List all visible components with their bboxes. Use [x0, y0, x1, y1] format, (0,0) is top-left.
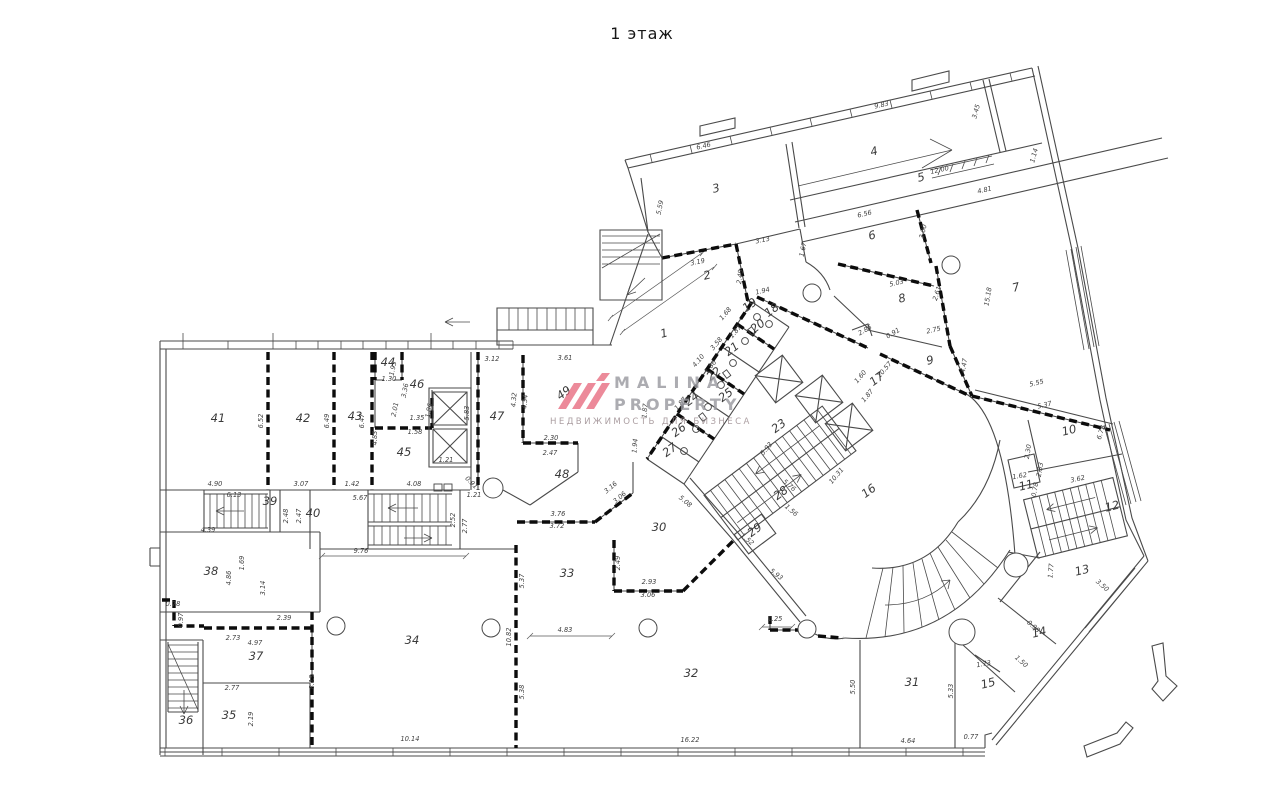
room-number-label: 31 [905, 675, 920, 689]
dimension-label: 1.68 [718, 306, 734, 322]
watermark-brand-line2: PROPERTY [614, 395, 740, 414]
dimension-label: 2.30 [544, 434, 559, 442]
room-number-label: 9 [925, 352, 935, 367]
dimension-label: 3.62 [1070, 474, 1086, 485]
watermark: MALINA PROPERTY НЕДВИЖИМОСТЬ ДЛЯ БИЗНЕСА [548, 365, 758, 435]
room-number-label: 13 [1073, 562, 1091, 579]
room-number-label: 7 [1011, 279, 1022, 295]
dimension-label: 1.42 [345, 480, 360, 488]
dimension-label: 5.50 [849, 680, 857, 695]
room-number-label: 1 [659, 325, 669, 340]
dimension-label: 2.48 [282, 509, 290, 524]
room-number-label: 39 [263, 494, 278, 508]
staircase-12 [1024, 478, 1128, 558]
dimension-label: 4.39 [201, 526, 216, 534]
dimension-label: 16.22 [681, 736, 700, 744]
room-number-label: 45 [397, 445, 412, 459]
dimension-label: 4.81 [976, 185, 992, 196]
dimension-label: 10.14 [401, 735, 420, 743]
dimension-label: 5.38 [518, 685, 526, 700]
room-number-label: 41 [211, 411, 226, 425]
dimension-label: 6.52 [257, 414, 265, 429]
room-number-label: 38 [204, 564, 219, 578]
dimension-label: 0.78 [1030, 482, 1040, 498]
dimension-label: 2.01 [390, 402, 401, 418]
dimension-label: 6.56 [856, 209, 872, 220]
dimension-label: 2.77 [461, 518, 469, 533]
dimension-label: 8.13 [308, 675, 316, 690]
room-number-label: 18 [762, 300, 782, 320]
dimension-label: 4.90 [208, 480, 223, 488]
site-chevron-shapes [1084, 643, 1177, 757]
dimension-label: 2.19 [247, 712, 255, 727]
dimension-label: 0.97 [177, 612, 185, 627]
dimension-label: 1.50 [1013, 654, 1029, 670]
dimension-label: 3.19 [690, 257, 706, 268]
dimension-label: 1.21 [467, 491, 482, 499]
room-number-label: 27 [660, 439, 681, 459]
staircase-fan [845, 440, 1010, 638]
dimension-label: 12.00 [929, 164, 949, 176]
dimension-label: 1.60 [853, 369, 869, 385]
dimension-label: 3.12 [485, 355, 500, 363]
dimension-label: 1.30 [382, 375, 397, 383]
dimension-label: 1.94 [630, 438, 639, 453]
room-number-label: 37 [249, 649, 264, 663]
room-number-label: 4 [869, 143, 879, 158]
dimension-label: 5.03 [888, 278, 904, 289]
dimension-label: 2.49 [614, 556, 622, 571]
dimension-label: 15.18 [982, 287, 993, 307]
dimension-label: 1.69 [238, 556, 246, 571]
room-number-label: 8 [897, 290, 907, 305]
dimension-label: 4.34 [520, 394, 529, 409]
dimension-label: 2.39 [277, 614, 292, 622]
dimension-label: 2.47 [295, 508, 303, 523]
dimension-label: 2.75 [925, 325, 941, 336]
room-number-label: 16 [859, 481, 879, 501]
room-number-label: 42 [296, 411, 311, 425]
dimension-label: 1.56 [783, 503, 799, 519]
dimension-label: 0.77 [964, 733, 979, 741]
room-number-label: 5 [916, 169, 926, 184]
dimension-label: 2.93 [642, 578, 657, 586]
elevator-shafts-core [755, 355, 873, 451]
room-number-label: 32 [684, 666, 699, 680]
room-number-label: 21 [722, 339, 742, 359]
dimension-label: 4.83 [371, 431, 379, 446]
dimension-label: 5.59 [655, 200, 666, 216]
dimension-label: 1.21 [439, 456, 454, 464]
dimension-label: 1.77 [1046, 562, 1055, 578]
room-number-label: 23 [769, 416, 789, 436]
dimension-label: 5.67 [353, 494, 368, 502]
dimension-label: 5.93 [759, 441, 775, 457]
dimension-label: 5.08 [677, 494, 693, 510]
dimension-label: 3.00 [918, 223, 929, 239]
dimension-label: 4.86 [225, 571, 233, 586]
dimension-label: 3.36 [400, 383, 411, 399]
dimension-label: 3.06 [641, 591, 656, 599]
dimension-label: 4.08 [407, 480, 422, 488]
dimension-label: 4.32 [509, 392, 518, 407]
room-number-label: 6 [867, 227, 877, 242]
dimension-label: 1.67 [798, 241, 809, 258]
dimension-label: 3.16 [603, 480, 619, 496]
dimension-label: 2.47 [543, 449, 558, 457]
watermark-tagline: НЕДВИЖИМОСТЬ ДЛЯ БИЗНЕСА [550, 417, 752, 427]
dimension-label: 2.52 [449, 513, 457, 528]
dimension-label: 1.73 [976, 659, 992, 669]
dimension-label: 3.61 [558, 354, 573, 362]
dimension-label: 1.87 [860, 387, 876, 404]
dimension-label: 4.97 [248, 639, 263, 647]
watermark-logo-icon [556, 373, 614, 409]
room-number-label: 47 [490, 409, 505, 423]
dimension-label: 2.33 [1035, 462, 1045, 478]
dimension-label: 1.14 [1028, 147, 1040, 163]
page-title: 1 этаж [0, 24, 1284, 43]
room-number-label: 10 [1060, 422, 1078, 439]
dimension-label: 2.30 [1023, 444, 1033, 460]
room-number-label: 30 [652, 520, 667, 534]
dimension-label: 5.55 [1028, 378, 1044, 389]
dimension-label: 10.31 [827, 466, 845, 486]
dimension-label: 10.82 [505, 628, 513, 647]
dimension-label: 1.25 [768, 615, 783, 623]
staircase-39 [204, 494, 268, 528]
dimension-label: 0.91 [885, 326, 902, 340]
dimension-label: 0.78 [166, 600, 181, 608]
dimension-label: 2.77 [225, 684, 240, 692]
dimension-label: 1.94 [754, 286, 770, 297]
dimension-label: 0.91 [463, 475, 479, 491]
dimension-label: 3.14 [259, 581, 267, 596]
room-number-label: 34 [405, 633, 420, 647]
dimension-label: 6.47 [358, 413, 366, 428]
dimension-label: 2.85 [857, 323, 874, 337]
dimension-label: 3.07 [294, 480, 309, 488]
dimension-label: 2.73 [226, 634, 241, 642]
room-number-label: 3 [711, 180, 721, 195]
dimension-label: 3.50 [1094, 578, 1110, 594]
room-number-label: 15 [979, 675, 997, 692]
dimension-label: 4.64 [901, 737, 916, 745]
room-number-label: 33 [560, 566, 575, 580]
room-number-label: 46 [410, 377, 425, 391]
watermark-brand-line1: MALINA [614, 373, 726, 392]
thick-walls [162, 210, 1110, 748]
dimension-label: 3.72 [550, 522, 565, 530]
dimension-label: 5.33 [947, 684, 955, 699]
dimension-label: 1.58 [408, 428, 423, 436]
dimension-label: 5.37 [518, 573, 526, 588]
dimension-label: 6.13 [227, 491, 242, 499]
room-number-label: 36 [179, 713, 194, 727]
dimension-label: 5.83 [463, 406, 471, 421]
dimension-label: 6.49 [323, 414, 331, 429]
dimension-label: 3.13 [755, 235, 771, 246]
dimension-label: 3.45 [970, 103, 982, 119]
staircase-40 [368, 494, 452, 545]
staircase-36 [168, 642, 198, 714]
dimension-label: 9.76 [354, 547, 369, 555]
dimension-label: 4.47 [959, 357, 970, 374]
dimension-label: 1.35 [410, 414, 425, 422]
floor-plan-page: 1 этаж [0, 0, 1284, 798]
dimension-label: 3.76 [551, 510, 566, 518]
room-number-label: 35 [222, 708, 237, 722]
room-number-label: 48 [555, 467, 570, 481]
dimension-label: 4.83 [558, 626, 573, 634]
room-number-label: 40 [306, 506, 321, 520]
